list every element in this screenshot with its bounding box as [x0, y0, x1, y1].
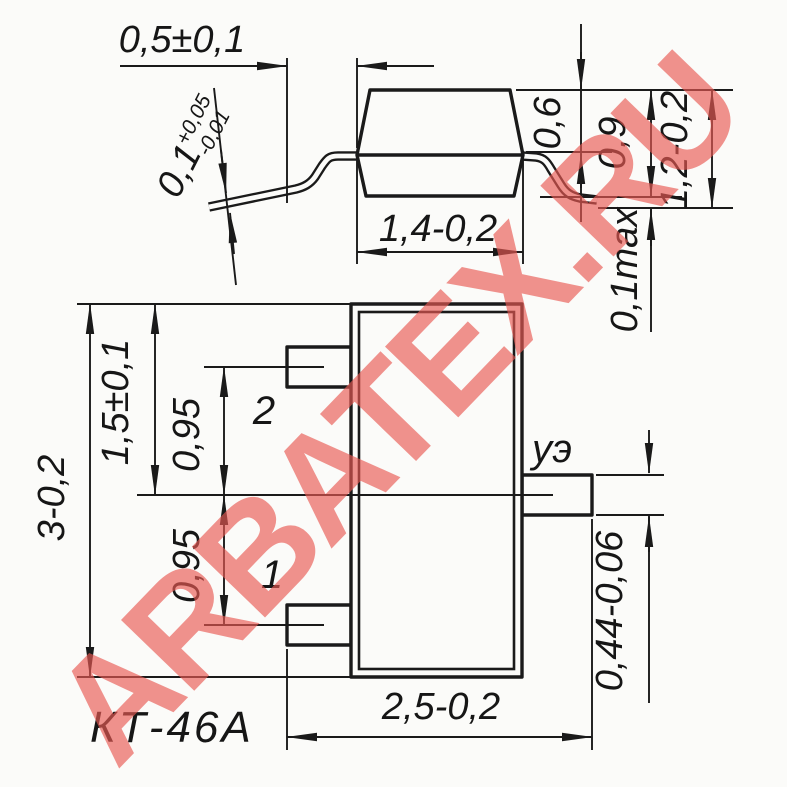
dim-label-body-length: 3-0,2 — [31, 455, 73, 542]
dim-label-total-width: 2,5-0,2 — [381, 686, 500, 728]
dim-label-lead-span: 0,5±0,1 — [119, 19, 246, 61]
dim-label-center-offset: 1,5±0,1 — [95, 339, 137, 466]
package-body-profile — [357, 90, 523, 196]
drawing-page: 0,5±0,1 1,4-0,2 0,6 0,9 0,1max 1,2-0,2 0… — [0, 0, 787, 787]
dim-label-lead-width: 0,44-0,06 — [589, 530, 631, 691]
pin-label-gate: уэ — [529, 427, 572, 471]
technical-drawing: 0,5±0,1 1,4-0,2 0,6 0,9 0,1max 1,2-0,2 0… — [0, 0, 787, 787]
dim-label-pitch-upper: 0,95 — [166, 397, 208, 472]
